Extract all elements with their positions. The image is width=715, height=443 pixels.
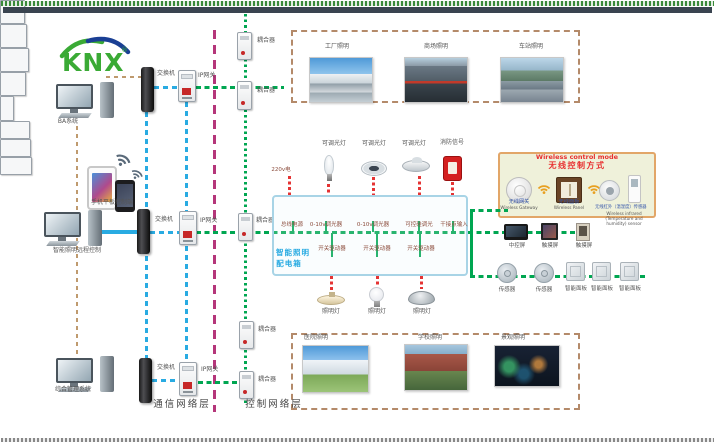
lamp-wire bbox=[376, 276, 379, 287]
sensor-icon bbox=[497, 263, 517, 283]
module-label: 可控硅调光 bbox=[405, 222, 433, 228]
cabinet-title-line1: 智能照明 bbox=[276, 249, 310, 258]
lamp-label: 照明灯 bbox=[368, 309, 386, 316]
knx-bus-bottom bbox=[198, 381, 240, 384]
mall-photo bbox=[404, 57, 468, 103]
dimmable-lamp-label: 可调光灯 bbox=[322, 141, 346, 148]
screen-label: 触摸屏 bbox=[542, 243, 559, 249]
switch3-gateway3-link bbox=[152, 379, 180, 382]
switch-label: 交换机 bbox=[157, 71, 175, 78]
dry-contact-input-icon bbox=[0, 96, 14, 121]
management-computer-label: 综合管理系统 bbox=[55, 387, 91, 394]
ethernet-switch-icon bbox=[141, 67, 154, 112]
coupler-icon bbox=[237, 32, 252, 60]
wireless-sensor-label-cn: 无线红外（温湿度）传感器 bbox=[595, 205, 653, 210]
scene-label: 医院照明 bbox=[304, 335, 328, 342]
switch-actuator-icon bbox=[0, 139, 31, 157]
ethernet-switch-icon bbox=[139, 358, 152, 403]
switch1-gateway1-link bbox=[154, 86, 179, 89]
switch-label: 交换机 bbox=[155, 217, 173, 224]
coupler-icon bbox=[239, 371, 254, 399]
smart-panel-label: 智能面板 bbox=[619, 286, 641, 292]
actuator-label: 开关驱动器 bbox=[407, 246, 435, 252]
scene-label: 工厂照明 bbox=[325, 44, 349, 51]
dimmer-module-icon bbox=[0, 24, 27, 48]
fire-alarm-icon bbox=[443, 156, 462, 181]
ip-gateway-icon bbox=[179, 211, 197, 245]
remote-control-computer-label: 智能照明远程控制 bbox=[53, 248, 101, 255]
switch-label: 交换机 bbox=[157, 365, 175, 372]
wireless-gateway-label-cn: 无线网关 bbox=[509, 198, 530, 205]
wireless-title-cn: 无线控制方式 bbox=[549, 161, 606, 170]
wireless-gateway-label-en: Wireless Gateway bbox=[500, 205, 537, 210]
lamp-label: 照明灯 bbox=[322, 309, 340, 316]
module-label: 总线电源 bbox=[281, 222, 303, 228]
scene-label: 景观照明 bbox=[501, 335, 525, 342]
ba-computer-icon bbox=[56, 82, 118, 122]
communication-layer-label: 通信网络层 bbox=[153, 400, 211, 411]
smart-panel-label: 智能面板 bbox=[591, 286, 613, 292]
switch-actuator-icon bbox=[0, 157, 32, 175]
ceiling-lamp-icon bbox=[402, 160, 430, 172]
ceiling-light-icon bbox=[317, 295, 345, 305]
knx-lighting-system-diagram: 工厂照明 商场照明 车站照明 医院照明 学校照明 景观照明 KNX ® BA系统… bbox=[0, 0, 715, 443]
hospital-photo bbox=[302, 345, 369, 393]
sensor-label: 传感器 bbox=[536, 287, 553, 293]
coupler-icon bbox=[237, 81, 252, 110]
school-photo bbox=[404, 344, 468, 391]
screen-label: 触摸屏 bbox=[576, 243, 593, 249]
ir-sensor-icon bbox=[599, 180, 620, 201]
lamp-wire bbox=[420, 276, 423, 289]
ethernet-switch-icon bbox=[137, 209, 150, 254]
wireless-panel-label-en: Wireless Panel bbox=[554, 205, 584, 210]
coupler-label: 耦合器 bbox=[258, 327, 276, 334]
scene-label: 商场照明 bbox=[424, 44, 448, 51]
module-label: 0-10v调光器 bbox=[357, 222, 389, 228]
coupler-label: 耦合器 bbox=[258, 377, 276, 384]
wireless-sensor-label-en: Wireless infrared (Temperature and humid… bbox=[595, 211, 653, 226]
coupler-label: 耦合器 bbox=[257, 88, 275, 95]
mobile-label: 手机平板控制端 bbox=[91, 200, 133, 207]
smart-panel-icon bbox=[566, 262, 585, 281]
remote-control-computer-icon bbox=[44, 210, 106, 250]
dimmer-module-icon bbox=[0, 48, 29, 72]
registered-mark: ® bbox=[121, 46, 128, 54]
touch-screen-icon bbox=[576, 223, 590, 241]
lamp-wire bbox=[418, 176, 421, 197]
dimmable-lamp-label: 可调光灯 bbox=[402, 141, 426, 148]
thyristor-dimmer-icon bbox=[0, 72, 26, 96]
module-label: 干接点输入 bbox=[440, 222, 468, 228]
fire-signal-label: 消防信号 bbox=[440, 140, 464, 147]
wireless-panel-label-cn: 无线面板 bbox=[559, 198, 580, 205]
ba-computer-label: BA系统 bbox=[58, 119, 78, 126]
knx-bus-right-vertical bbox=[470, 211, 473, 278]
touch-screen-icon bbox=[541, 223, 558, 240]
ip-gateway-label: IP网关 bbox=[201, 367, 218, 374]
knx-logo: KNX ® bbox=[56, 34, 136, 84]
downlight-icon bbox=[361, 161, 387, 176]
actuator-label: 开关驱动器 bbox=[318, 246, 346, 252]
sensor-remote-icon bbox=[628, 175, 641, 203]
cabinet-title-line2: 配电箱 bbox=[276, 260, 302, 269]
pc2-switch2-link bbox=[102, 230, 138, 234]
wifi-icon bbox=[537, 183, 551, 194]
smart-panel-icon bbox=[592, 262, 611, 281]
coupler-label: 耦合器 bbox=[257, 38, 275, 45]
knx-bus-row2 bbox=[470, 275, 645, 278]
actuator-label: 开关驱动器 bbox=[363, 246, 391, 252]
control-layer-label: 控制网络层 bbox=[245, 400, 303, 411]
switch-actuator-icon bbox=[0, 121, 30, 139]
ip-gateway-label: IP网关 bbox=[198, 73, 215, 80]
spot-light-icon bbox=[408, 291, 435, 305]
ip-gateway-icon bbox=[178, 70, 196, 102]
knx-logo-text: KNX bbox=[62, 48, 125, 77]
sensor-label: 传感器 bbox=[499, 287, 516, 293]
factory-photo bbox=[309, 57, 373, 103]
ip-gateway-icon bbox=[179, 362, 197, 396]
mains-wire bbox=[288, 176, 291, 196]
landscape-photo bbox=[494, 345, 560, 387]
lamp-wire bbox=[372, 177, 375, 197]
screen-label: 中控屏 bbox=[509, 243, 526, 249]
scene-label: 车站照明 bbox=[519, 44, 543, 51]
coupler-icon bbox=[238, 213, 253, 241]
ip-gateway-label: IP网关 bbox=[200, 218, 217, 225]
candle-bulb-icon bbox=[324, 155, 334, 175]
mains-label: 220v电 bbox=[271, 167, 290, 173]
central-control-screen-icon bbox=[504, 224, 528, 240]
lamp-wire bbox=[330, 276, 333, 293]
bulb-light-icon bbox=[369, 287, 384, 302]
lamp-label: 照明灯 bbox=[413, 309, 431, 316]
scene-label: 学校照明 bbox=[418, 335, 442, 342]
phone-icon bbox=[115, 180, 135, 212]
smart-panel-icon bbox=[620, 262, 639, 281]
coupler-icon bbox=[239, 321, 254, 349]
station-photo bbox=[500, 57, 564, 103]
module-label: 0-10v调光器 bbox=[310, 222, 342, 228]
switch2-gateway2-link bbox=[150, 231, 180, 234]
smart-panel-label: 智能面板 bbox=[565, 286, 587, 292]
sensor-icon bbox=[534, 263, 554, 283]
dimmable-lamp-label: 可调光灯 bbox=[362, 141, 386, 148]
